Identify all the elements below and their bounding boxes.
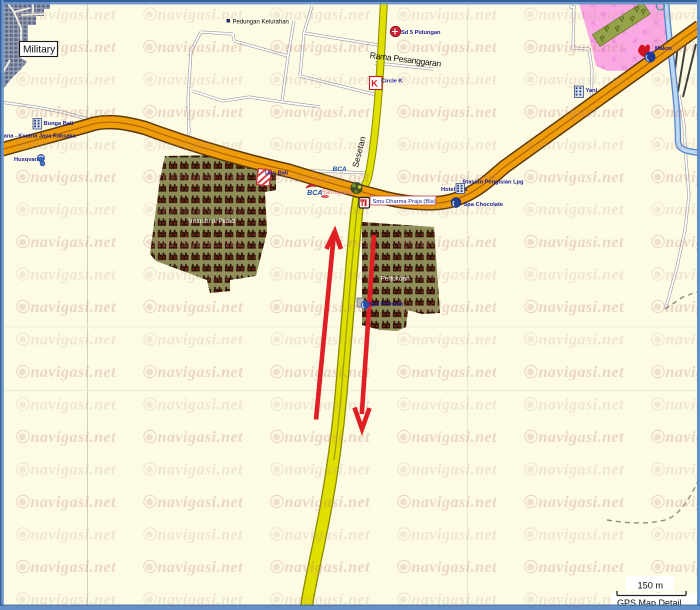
svg-text:navigasi.net: navigasi.net	[31, 559, 117, 576]
svg-text:navigasi.net: navigasi.net	[31, 332, 117, 349]
svg-text:navigasi.net: navigasi.net	[539, 299, 625, 316]
svg-text:150 m: 150 m	[638, 581, 664, 591]
svg-text:navigasi.net: navigasi.net	[285, 429, 371, 446]
svg-text:navigasi.net: navigasi.net	[539, 169, 625, 186]
svg-text:navigasi.net: navigasi.net	[539, 234, 625, 251]
svg-text:navigasi.net: navigasi.net	[158, 527, 244, 544]
svg-text:navigasi.net: navigasi.net	[31, 397, 117, 414]
svg-text:K: K	[371, 79, 378, 89]
svg-text:Circle K: Circle K	[381, 79, 403, 85]
svg-text:Pertokoan: Pertokoan	[381, 276, 411, 283]
svg-text:navigasi.net: navigasi.net	[539, 559, 625, 576]
svg-text:navigasi.net: navigasi.net	[412, 234, 498, 251]
svg-text:navigasi.net: navigasi.net	[285, 462, 371, 479]
svg-text:navigasi.net: navigasi.net	[285, 104, 371, 121]
svg-text:navigasi.net: navigasi.net	[285, 364, 371, 381]
svg-text:Military: Military	[23, 45, 56, 56]
svg-text:navigasi.net: navigasi.net	[158, 429, 244, 446]
svg-text:navigasi.net: navigasi.net	[285, 202, 371, 219]
svg-text:navigasi.net: navigasi.net	[31, 462, 117, 479]
svg-text:Sd 5 Pidungan: Sd 5 Pidungan	[401, 30, 441, 36]
svg-text:navigasi.net: navigasi.net	[285, 527, 371, 544]
svg-text:navigasi.net: navigasi.net	[666, 72, 700, 89]
svg-text:navigasi.net: navigasi.net	[412, 364, 498, 381]
svg-text:navigasi.net: navigasi.net	[412, 104, 498, 121]
svg-text:navigasi.net: navigasi.net	[158, 494, 244, 511]
svg-text:navigasi.net: navigasi.net	[666, 104, 700, 121]
svg-text:navigasi.net: navigasi.net	[412, 494, 498, 511]
svg-text:navigasi.net: navigasi.net	[666, 397, 700, 414]
svg-text:navigasi.net: navigasi.net	[666, 462, 700, 479]
svg-text:navigasi.net: navigasi.net	[666, 364, 700, 381]
svg-text:navigasi.net: navigasi.net	[31, 202, 117, 219]
svg-text:navigasi.net: navigasi.net	[412, 137, 498, 154]
svg-text:navigasi.net: navigasi.net	[158, 559, 244, 576]
svg-text:navigasi.net: navigasi.net	[666, 267, 700, 284]
svg-text:Stasiun Pengisian Lpg: Stasiun Pengisian Lpg	[463, 180, 525, 186]
svg-text:navigasi.net: navigasi.net	[666, 202, 700, 219]
svg-text:Spa Permata: Spa Permata	[369, 302, 404, 308]
svg-text:navigasi.net: navigasi.net	[31, 7, 117, 24]
svg-text:navigasi.net: navigasi.net	[285, 72, 371, 89]
svg-text:Smu Dharma Praja (Bla): Smu Dharma Praja (Bla)	[373, 199, 436, 205]
svg-text:Industri di Pidad: Industri di Pidad	[189, 218, 235, 225]
svg-text:navigasi.net: navigasi.net	[285, 494, 371, 511]
svg-text:navigasi.net: navigasi.net	[539, 429, 625, 446]
svg-text:navigasi.net: navigasi.net	[158, 7, 244, 24]
svg-text:navigasi.net: navigasi.net	[158, 137, 244, 154]
svg-text:navigasi.net: navigasi.net	[31, 494, 117, 511]
svg-text:navigasi.net: navigasi.net	[31, 234, 117, 251]
svg-text:navigasi.net: navigasi.net	[666, 494, 700, 511]
svg-text:navigasi.net: navigasi.net	[285, 559, 371, 576]
svg-text:navigasi.net: navigasi.net	[285, 39, 371, 56]
svg-text:navigasi.net: navigasi.net	[412, 397, 498, 414]
svg-text:navigasi.net: navigasi.net	[412, 559, 498, 576]
svg-text:navigasi.net: navigasi.net	[158, 104, 244, 121]
svg-text:navigasi.net: navigasi.net	[539, 39, 625, 56]
svg-text:navigasi.net: navigasi.net	[158, 72, 244, 89]
svg-text:navigasi.net: navigasi.net	[539, 527, 625, 544]
svg-text:navigasi.net: navigasi.net	[31, 527, 117, 544]
svg-text:navigasi.net: navigasi.net	[539, 462, 625, 479]
svg-text:navigasi.net: navigasi.net	[158, 267, 244, 284]
svg-text:navigasi.net: navigasi.net	[666, 332, 700, 349]
svg-text:navigasi.net: navigasi.net	[666, 7, 700, 24]
svg-text:navigasi.net: navigasi.net	[31, 72, 117, 89]
svg-text:navigasi.net: navigasi.net	[539, 397, 625, 414]
svg-text:navigasi.net: navigasi.net	[158, 202, 244, 219]
svg-text:navigasi.net: navigasi.net	[539, 137, 625, 154]
svg-text:navigasi.net: navigasi.net	[666, 137, 700, 154]
svg-text:Makro: Makro	[655, 46, 672, 52]
svg-text:navigasi.net: navigasi.net	[666, 559, 700, 576]
svg-text:navigasi.net: navigasi.net	[539, 364, 625, 381]
svg-text:navigasi.net: navigasi.net	[412, 267, 498, 284]
svg-text:Yani: Yani	[586, 88, 598, 94]
svg-text:Ubu Bali: Ubu Bali	[265, 171, 288, 177]
svg-text:navigasi.net: navigasi.net	[158, 299, 244, 316]
svg-text:navigasi.net: navigasi.net	[666, 527, 700, 544]
svg-text:navigasi.net: navigasi.net	[666, 169, 700, 186]
svg-text:navigasi.net: navigasi.net	[31, 299, 117, 316]
svg-text:navigasi.net: navigasi.net	[666, 429, 700, 446]
svg-text:navigasi.net: navigasi.net	[666, 299, 700, 316]
svg-text:navigasi.net: navigasi.net	[31, 429, 117, 446]
svg-text:navigasi.net: navigasi.net	[539, 494, 625, 511]
svg-text:navigasi.net: navigasi.net	[412, 332, 498, 349]
svg-text:navigasi.net: navigasi.net	[31, 104, 117, 121]
svg-text:layana - Ksatria Jaya Raksaka: layana - Ksatria Jaya Raksaka	[0, 134, 76, 140]
svg-text:navigasi.net: navigasi.net	[158, 397, 244, 414]
svg-text:navigasi.net: navigasi.net	[158, 364, 244, 381]
svg-text:navigasi.net: navigasi.net	[539, 332, 625, 349]
svg-text:navigasi.net: navigasi.net	[158, 332, 244, 349]
svg-text:navigasi.net: navigasi.net	[539, 202, 625, 219]
svg-text:Pedungan Kelurahan: Pedungan Kelurahan	[233, 20, 289, 26]
svg-text:navigasi.net: navigasi.net	[412, 527, 498, 544]
svg-text:navigasi.net: navigasi.net	[412, 7, 498, 24]
svg-text:Spa Chocolate: Spa Chocolate	[464, 202, 504, 208]
svg-text:navigasi.net: navigasi.net	[31, 267, 117, 284]
svg-text:navigasi.net: navigasi.net	[31, 169, 117, 186]
svg-text:navigasi.net: navigasi.net	[412, 39, 498, 56]
svg-text:navigasi.net: navigasi.net	[412, 72, 498, 89]
svg-text:navigasi.net: navigasi.net	[539, 104, 625, 121]
svg-text:navigasi.net: navigasi.net	[412, 299, 498, 316]
svg-text:BCA: BCA	[333, 166, 347, 173]
svg-text:navigasi.net: navigasi.net	[158, 462, 244, 479]
svg-text:navigasi.net: navigasi.net	[412, 429, 498, 446]
svg-text:navigasi.net: navigasi.net	[539, 7, 625, 24]
svg-text:navigasi.net: navigasi.net	[539, 267, 625, 284]
svg-text:navigasi.net: navigasi.net	[31, 364, 117, 381]
svg-text:navigasi.net: navigasi.net	[158, 234, 244, 251]
svg-text:navigasi.net: navigasi.net	[666, 234, 700, 251]
svg-text:navigasi.net: navigasi.net	[285, 7, 371, 24]
svg-text:navigasi.net: navigasi.net	[412, 462, 498, 479]
svg-text:Bunga Bali: Bunga Bali	[44, 121, 74, 127]
svg-text:navigasi.net: navigasi.net	[158, 169, 244, 186]
svg-text:navigasi.net: navigasi.net	[158, 39, 244, 56]
svg-text:navigasi.net: navigasi.net	[285, 332, 371, 349]
